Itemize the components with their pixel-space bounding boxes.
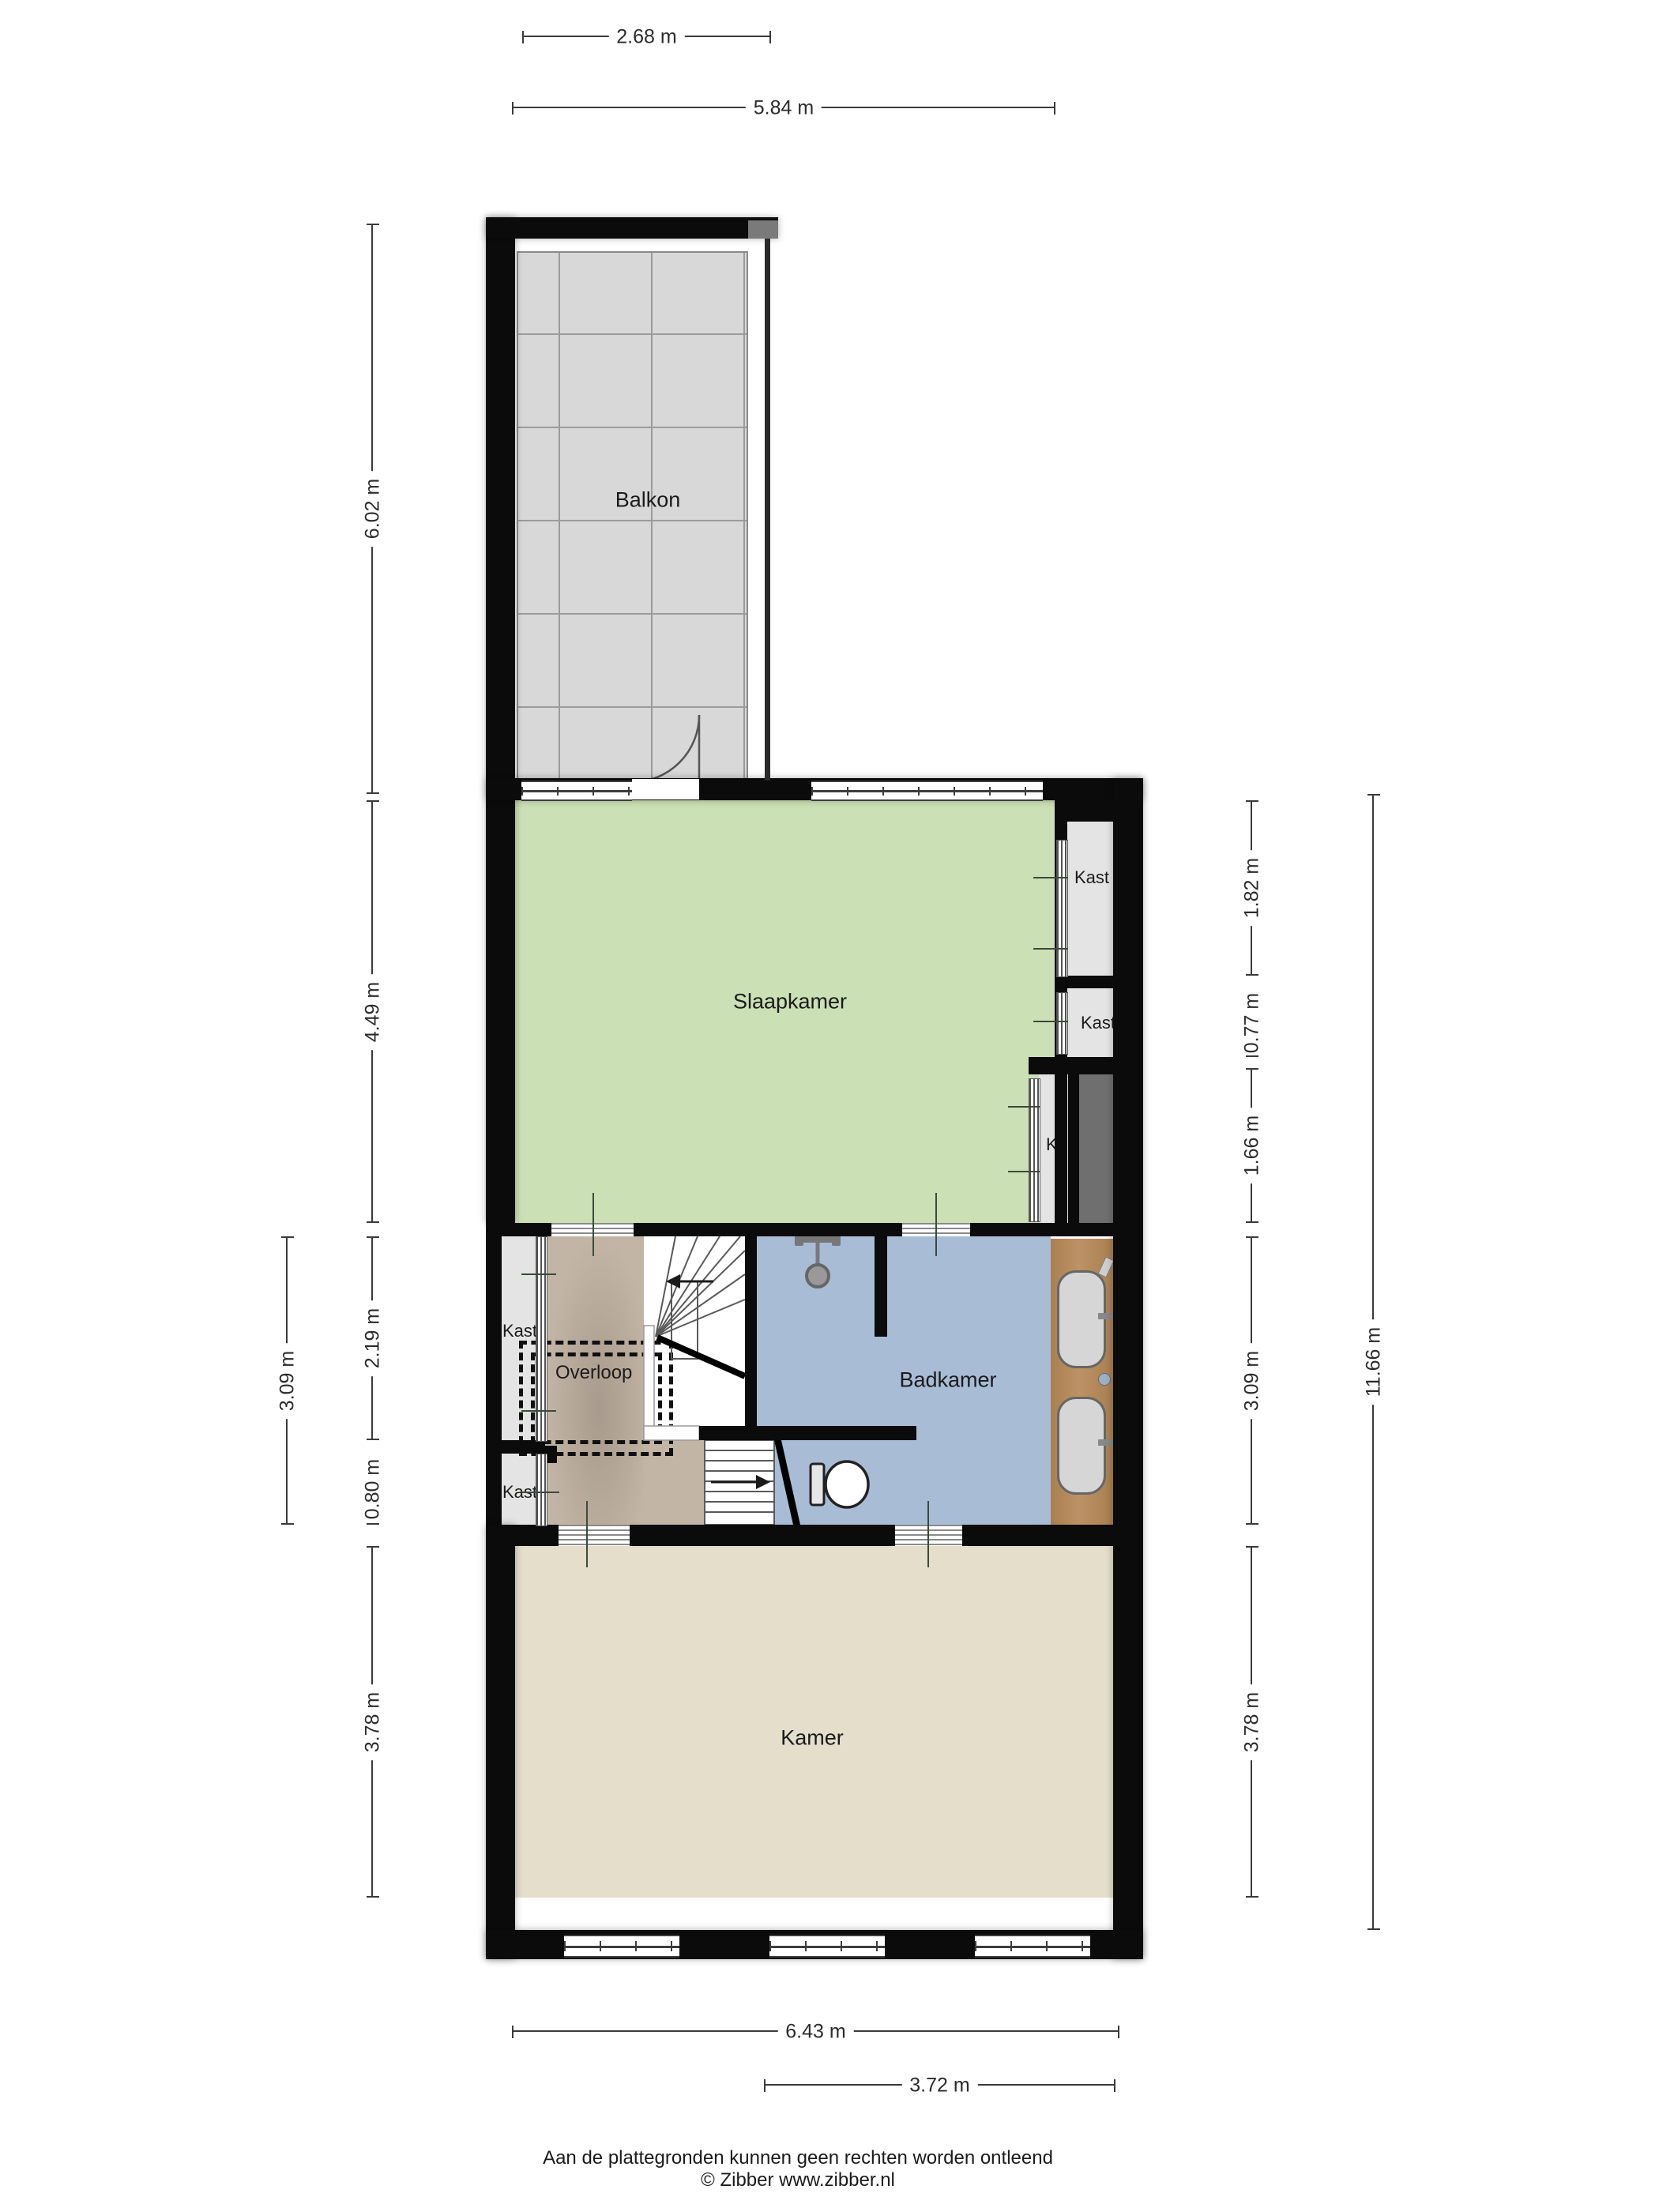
closet-tick bbox=[521, 1410, 556, 1412]
closet-tick bbox=[521, 1492, 559, 1493]
dim-left-balcony: 6.02 m bbox=[371, 224, 373, 794]
dim-label: 1.66 m bbox=[1240, 1108, 1266, 1183]
dim-label: 3.78 m bbox=[360, 1683, 386, 1759]
balcony-railing-cap bbox=[748, 220, 778, 239]
closet-label-right-mid: Kast bbox=[1081, 1013, 1115, 1033]
closet-label-right-top: Kast bbox=[1074, 867, 1109, 888]
dim-bottom-width: 6.43 m bbox=[512, 2030, 1119, 2032]
window-room-1 bbox=[564, 1935, 679, 1958]
counter-accessory bbox=[1098, 1373, 1111, 1386]
door-tick bbox=[586, 1501, 588, 1567]
closet-tick bbox=[1008, 1171, 1040, 1172]
dim-right-closet-k: 1.66 m bbox=[1251, 1068, 1252, 1223]
balcony-door-arc bbox=[628, 709, 703, 788]
closet-tick bbox=[1033, 948, 1068, 950]
room-label-badkamer: Badkamer bbox=[899, 1368, 996, 1393]
sink-faucet bbox=[1098, 1439, 1113, 1446]
door-tick bbox=[592, 1193, 594, 1256]
dim-right-closet-mid: 0.77 m bbox=[1251, 988, 1252, 1057]
shaft bbox=[1079, 1068, 1113, 1223]
dim-bottom-partial: 3.72 m bbox=[764, 2084, 1115, 2086]
closet-label-left-top: Kast bbox=[502, 1321, 537, 1341]
wall-left-upper bbox=[486, 217, 515, 1223]
wall-k-shaft-divider bbox=[1068, 1068, 1079, 1223]
dim-left-room: 3.78 m bbox=[371, 1546, 373, 1898]
dim-right-room: 3.78 m bbox=[1251, 1546, 1252, 1898]
stairs-lower-flight bbox=[699, 1440, 802, 1525]
room-floor bbox=[515, 1546, 1113, 1898]
balcony-door-opening bbox=[632, 779, 699, 799]
dim-label: 11.66 m bbox=[1361, 1319, 1387, 1405]
wall-right-outer bbox=[1113, 778, 1143, 1959]
sink-faucet bbox=[1098, 1313, 1113, 1319]
room-label-slaapkamer: Slaapkamer bbox=[733, 990, 847, 1014]
dim-label: 3.09 m bbox=[275, 1342, 301, 1418]
dim-right-bathroom: 3.09 m bbox=[1251, 1236, 1252, 1525]
room-label-kamer: Kamer bbox=[781, 1726, 844, 1751]
door-landing-room bbox=[559, 1525, 630, 1546]
dim-label: 3.78 m bbox=[1240, 1683, 1266, 1759]
room-sill-strip bbox=[515, 1898, 1113, 1930]
window-room-3 bbox=[975, 1935, 1090, 1958]
dim-label: 6.43 m bbox=[777, 2019, 853, 2045]
window-room-2 bbox=[769, 1935, 885, 1958]
stairs-winder bbox=[644, 1236, 745, 1440]
dim-label: 1.82 m bbox=[1240, 850, 1266, 926]
dim-left-middle-total: 3.09 m bbox=[286, 1236, 288, 1525]
balcony-railing bbox=[765, 239, 770, 781]
wall-left-middle bbox=[486, 1223, 502, 1525]
dim-label: 6.02 m bbox=[360, 471, 386, 547]
sliding-door-closet-left-bottom bbox=[536, 1454, 547, 1526]
sink-icon bbox=[1057, 1397, 1106, 1495]
closet-tick bbox=[1033, 1021, 1068, 1022]
closet-tick bbox=[521, 1273, 556, 1275]
toilet-icon bbox=[811, 1460, 871, 1509]
footer-disclaimer: Aan de plattegronden kunnen geen rechten… bbox=[0, 2147, 1596, 2169]
dim-top-balcony: 2.68 m bbox=[522, 36, 771, 37]
wall-closet-divider1 bbox=[1055, 976, 1113, 988]
wall-balcony-top bbox=[486, 217, 778, 239]
dim-label: 4.49 m bbox=[360, 973, 386, 1049]
dim-right-total: 11.66 m bbox=[1372, 794, 1374, 1930]
dim-label: 0.80 m bbox=[360, 1451, 386, 1527]
dim-label: 2.68 m bbox=[608, 24, 684, 51]
dim-label: 0.77 m bbox=[1240, 984, 1266, 1060]
dim-label: 3.72 m bbox=[901, 2073, 977, 2099]
door-tick bbox=[935, 1193, 937, 1256]
wall-stairs-bathroom bbox=[745, 1236, 757, 1440]
sliding-door-closet-right-top bbox=[1056, 840, 1068, 977]
dim-label: 5.84 m bbox=[746, 96, 822, 122]
sink-icon bbox=[1057, 1270, 1106, 1368]
dim-left-landing: 2.19 m bbox=[371, 1236, 373, 1440]
wall-left-lower bbox=[486, 1525, 515, 1959]
window-bedroom-left bbox=[521, 781, 632, 801]
floor-plan-canvas: Balkon Slaapkamer Badkamer Kamer Overloo… bbox=[0, 0, 1659, 2212]
window-bedroom-right bbox=[811, 781, 1043, 801]
sliding-door-closet-right-mid bbox=[1056, 992, 1068, 1055]
dim-right-closet-top: 1.82 m bbox=[1251, 800, 1252, 976]
closet-tick bbox=[1008, 1106, 1040, 1108]
dim-top-width: 5.84 m bbox=[512, 107, 1055, 108]
dim-label: 2.19 m bbox=[360, 1300, 386, 1376]
dim-left-closet: 0.80 m bbox=[371, 1454, 373, 1525]
room-label-overloop: Overloop bbox=[555, 1362, 632, 1384]
dim-left-bedroom: 4.49 m bbox=[371, 800, 373, 1223]
closet-right-top-floor bbox=[1067, 822, 1113, 976]
room-label-balkon: Balkon bbox=[615, 488, 681, 513]
sliding-door-closet-k bbox=[1029, 1078, 1040, 1222]
wall-toilet-nook bbox=[699, 1426, 916, 1440]
footer-copyright: © Zibber www.zibber.nl bbox=[0, 2169, 1596, 2191]
shower-icon bbox=[794, 1231, 849, 1292]
dim-label: 3.09 m bbox=[1240, 1342, 1266, 1418]
door-tick bbox=[927, 1501, 929, 1567]
closet-tick bbox=[1033, 877, 1068, 878]
wall-bathroom-stub bbox=[875, 1236, 887, 1337]
balcony-tiles bbox=[517, 251, 748, 782]
